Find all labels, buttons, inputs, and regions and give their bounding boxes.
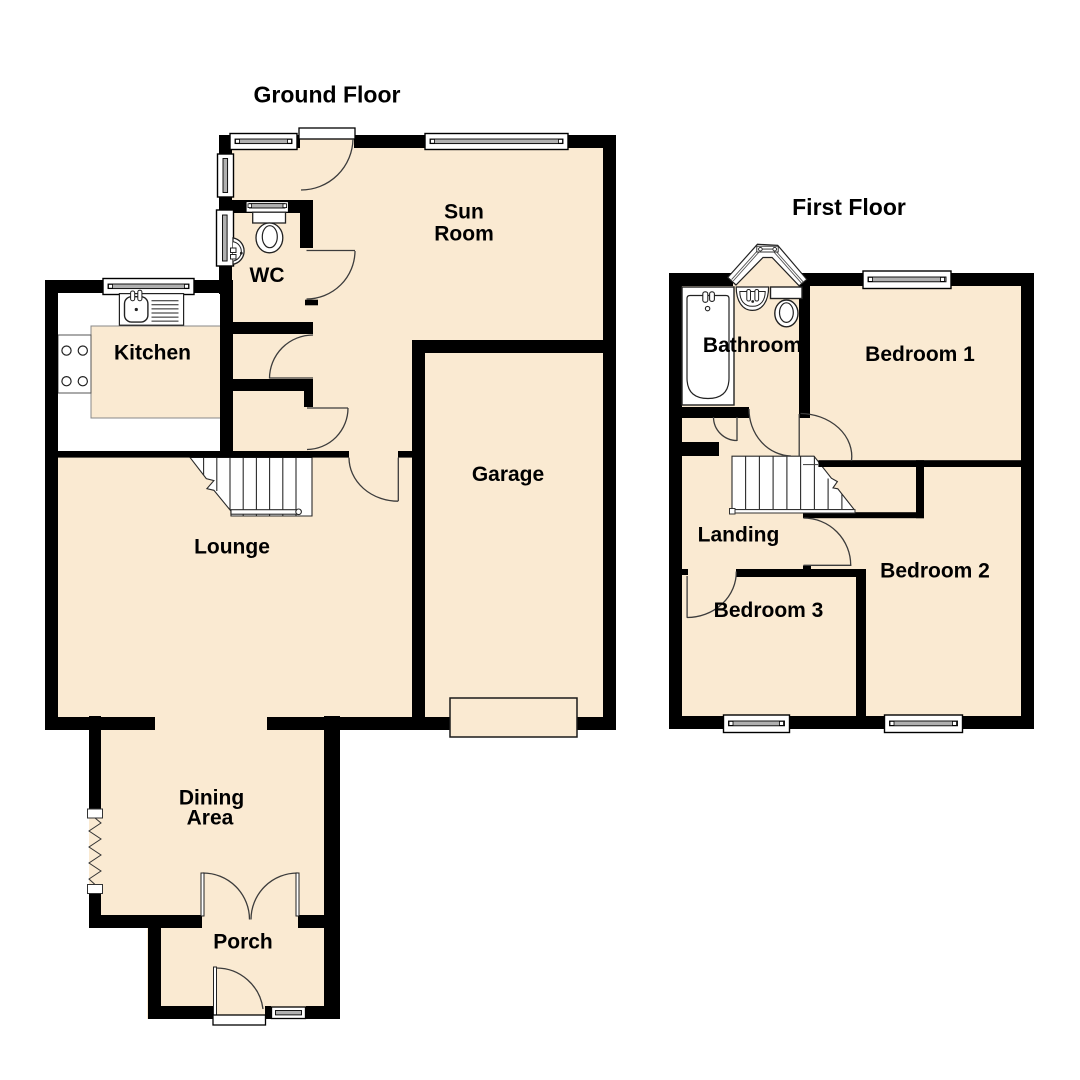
svg-text:WC: WC — [250, 264, 285, 287]
svg-text:Room: Room — [434, 223, 494, 246]
svg-text:Ground Floor: Ground Floor — [254, 82, 401, 108]
svg-text:Bedroom 1: Bedroom 1 — [865, 343, 975, 366]
svg-text:Landing: Landing — [698, 524, 780, 547]
svg-text:Sun: Sun — [444, 201, 484, 224]
svg-text:Bedroom 2: Bedroom 2 — [880, 560, 990, 583]
svg-text:First Floor: First Floor — [792, 194, 906, 220]
svg-text:Area: Area — [187, 807, 234, 830]
svg-text:Kitchen: Kitchen — [114, 342, 191, 365]
svg-text:Garage: Garage — [472, 463, 544, 486]
svg-text:Porch: Porch — [213, 931, 273, 954]
svg-text:Bedroom 3: Bedroom 3 — [714, 599, 824, 622]
svg-text:Bathroom: Bathroom — [703, 334, 802, 357]
svg-text:Lounge: Lounge — [194, 536, 270, 559]
